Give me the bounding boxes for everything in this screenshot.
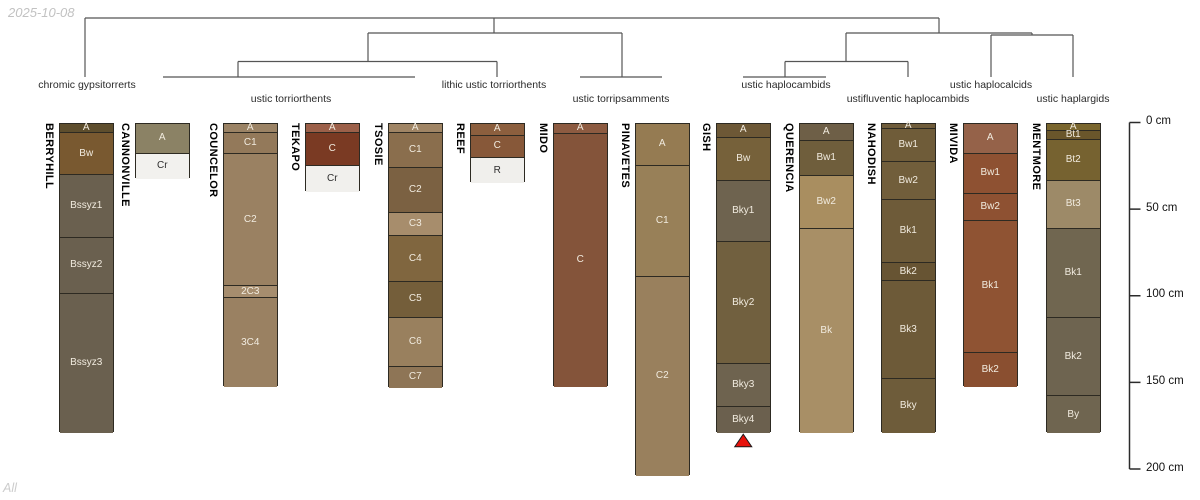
horizon-label: A [577, 123, 584, 133]
depth-tick-label: 50 cm [1146, 202, 1177, 214]
profile-column: ABwBky1Bky2Bky3Bky4 [716, 123, 771, 432]
profile-column: ACr [135, 123, 190, 178]
horizon-block: C [554, 134, 607, 387]
horizon-label: A [247, 123, 254, 133]
horizon-block: R [471, 158, 524, 183]
horizon-label: A [329, 123, 336, 133]
horizon-label: Bssyz3 [70, 358, 102, 368]
profile-column: ACCr [305, 123, 360, 191]
footer-label: All [3, 481, 17, 495]
horizon-label: A [494, 124, 501, 134]
horizon-block: Bw [60, 133, 113, 175]
selected-profile-marker [735, 434, 752, 447]
taxon-label: ustic torriorthents [251, 93, 332, 105]
profile-name-label: CANNONVILLE [117, 123, 133, 253]
profile-column: AC1C2 [635, 123, 690, 476]
horizon-block: 2C3 [224, 286, 277, 298]
horizon-block: C [306, 133, 359, 166]
horizon-block: Bt2 [1047, 140, 1100, 181]
horizon-label: C2 [244, 215, 257, 225]
horizon-block: Bssyz3 [60, 294, 113, 433]
horizon-label: Bk1 [900, 226, 917, 236]
horizon-label: Bw1 [817, 153, 836, 163]
profile-name-label: TEKAPO [287, 123, 303, 253]
horizon-label: Bk1 [982, 281, 999, 291]
horizon-block: A [471, 124, 524, 136]
horizon-label: Bssyz2 [70, 260, 102, 270]
horizon-block: Bk3 [882, 281, 935, 379]
horizon-block: C7 [389, 367, 442, 388]
horizon-label: C [329, 144, 336, 154]
horizon-block: Bk2 [882, 263, 935, 281]
profile-column: ABw1Bw2Bk1Bk2Bk3Bky [881, 123, 936, 432]
horizon-label: A [412, 123, 419, 133]
profile-name-label: TSOSIE [370, 123, 386, 253]
horizon-block: Bw2 [964, 194, 1017, 221]
horizon-label: C6 [409, 337, 422, 347]
profile-name-label: MIDO [535, 123, 551, 253]
horizon-label: Bw [79, 149, 93, 159]
horizon-label: Bky2 [732, 298, 754, 308]
profile-name-label: COUNCELOR [205, 123, 221, 253]
horizon-label: C1 [656, 216, 669, 226]
taxon-label: ustic haplargids [1037, 93, 1110, 105]
horizon-label: A [659, 139, 666, 149]
profile-name-label: GISH [698, 123, 714, 253]
profile-column: ABwBssyz1Bssyz2Bssyz3 [59, 123, 114, 432]
horizon-block: C [471, 136, 524, 159]
taxon-label: ustic torripsamments [573, 93, 670, 105]
horizon-block: A [136, 124, 189, 154]
horizon-block: C3 [389, 213, 442, 236]
depth-tick-label: 200 cm [1146, 462, 1184, 474]
horizon-label: Bky3 [732, 380, 754, 390]
horizon-label: Bw2 [817, 197, 836, 207]
horizon-label: By [1067, 410, 1079, 420]
profile-column: ABw1Bw2Bk1Bk2 [963, 123, 1018, 386]
horizon-block: Bk [800, 229, 853, 433]
horizon-label: Bk2 [900, 267, 917, 277]
taxon-label: ustifluventic haplocambids [847, 93, 970, 105]
horizon-block: Bk2 [1047, 318, 1100, 396]
horizon-block: Bk1 [882, 200, 935, 263]
horizon-label: C4 [409, 254, 422, 264]
horizon-block: Bw1 [800, 141, 853, 177]
profile-name-label: PINAVETES [617, 123, 633, 253]
horizon-block: A [800, 124, 853, 141]
horizon-block: A [60, 124, 113, 134]
horizon-label: Bw [736, 154, 750, 164]
horizon-block: Bt1 [1047, 131, 1100, 140]
horizon-label: C [577, 255, 584, 265]
horizon-label: Bw1 [981, 168, 1000, 178]
horizon-label: Bt2 [1066, 155, 1081, 165]
horizon-label: A [740, 125, 747, 135]
horizon-label: C [494, 141, 501, 151]
horizon-block: Bssyz2 [60, 238, 113, 294]
horizon-block: C1 [636, 166, 689, 277]
taxon-label: lithic ustic torriorthents [442, 79, 546, 91]
horizon-block: Bky [882, 379, 935, 433]
horizon-label: 3C4 [241, 338, 259, 348]
horizon-block: A [964, 124, 1017, 154]
horizon-block: Bt3 [1047, 181, 1100, 230]
horizon-label: A [987, 133, 994, 143]
horizon-label: Bk2 [982, 365, 999, 375]
horizon-label: C7 [409, 372, 422, 382]
profile-column: AC [553, 123, 608, 386]
horizon-block: C5 [389, 282, 442, 318]
horizon-label: Bky [900, 401, 917, 411]
horizon-block: Bw [717, 138, 770, 180]
taxon-label: ustic haplocalcids [950, 79, 1032, 91]
horizon-block: C2 [389, 168, 442, 213]
horizon-block: Bw2 [800, 176, 853, 229]
horizon-label: A [823, 127, 830, 137]
profile-column: AC1C2C3C4C5C6C7 [388, 123, 443, 387]
horizon-label: Bk1 [1065, 268, 1082, 278]
horizon-label: Bw2 [981, 202, 1000, 212]
horizon-label: C2 [656, 371, 669, 381]
horizon-block: Bky4 [717, 407, 770, 433]
horizon-block: Bk2 [964, 353, 1017, 387]
horizon-block: A [717, 124, 770, 139]
profile-name-label: MENTMORE [1028, 123, 1044, 253]
horizon-label: C5 [409, 294, 422, 304]
horizon-block: A [389, 124, 442, 134]
horizon-block: C2 [224, 154, 277, 287]
horizon-block: Bk1 [1047, 229, 1100, 318]
horizon-block: Bw2 [882, 162, 935, 199]
depth-tick-label: 100 cm [1146, 288, 1184, 300]
horizon-label: 2C3 [241, 287, 259, 297]
horizon-label: Bk3 [900, 325, 917, 335]
horizon-label: C2 [409, 185, 422, 195]
profile-column: ABt1Bt2Bt3Bk1Bk2By [1046, 123, 1101, 432]
profile-column: ACR [470, 123, 525, 183]
horizon-label: C3 [409, 219, 422, 229]
horizon-block: Bw1 [964, 154, 1017, 194]
depth-tick-label: 150 cm [1146, 375, 1184, 387]
horizon-block: Bssyz1 [60, 175, 113, 237]
horizon-block: Bk1 [964, 221, 1017, 354]
horizon-label: Cr [157, 161, 168, 171]
horizon-block: C2 [636, 277, 689, 476]
horizon-label: R [494, 166, 501, 176]
horizon-block: A [224, 124, 277, 134]
taxon-label: chromic gypsitorrerts [38, 79, 135, 91]
profile-name-label: QUERENCIA [781, 123, 797, 253]
profile-name-label: BERRYHILL [41, 123, 57, 253]
horizon-block: C6 [389, 318, 442, 367]
horizon-label: Bt1 [1066, 130, 1081, 140]
horizon-label: Bky4 [732, 415, 754, 425]
horizon-block: Cr [306, 166, 359, 192]
horizon-block: Bky1 [717, 181, 770, 243]
horizon-block: C4 [389, 236, 442, 282]
horizon-label: A [159, 133, 166, 143]
depth-tick-label: 0 cm [1146, 115, 1171, 127]
soil-dendrogram-figure: 2025-10-08 chromic gypsitorrertsustic to… [0, 0, 1200, 500]
horizon-block: 3C4 [224, 298, 277, 386]
horizon-label: Bw1 [899, 140, 918, 150]
horizon-block: Cr [136, 154, 189, 179]
horizon-label: A [83, 123, 90, 133]
profile-column: ABw1Bw2Bk [799, 123, 854, 432]
profile-column: AC1C22C33C4 [223, 123, 278, 386]
horizon-label: Bssyz1 [70, 201, 102, 211]
horizon-block: Bky2 [717, 242, 770, 364]
horizon-label: Bky1 [732, 206, 754, 216]
horizon-block: C1 [389, 133, 442, 168]
horizon-label: C1 [409, 145, 422, 155]
horizon-block: A [554, 124, 607, 134]
horizon-block: Bw1 [882, 129, 935, 163]
profile-name-label: REEF [452, 123, 468, 253]
horizon-block: A [306, 124, 359, 134]
profile-name-label: MIVIDA [945, 123, 961, 253]
horizon-label: Bk [820, 326, 832, 336]
horizon-label: Bw2 [899, 176, 918, 186]
profile-name-label: NAHODISH [863, 123, 879, 253]
horizon-label: Cr [327, 174, 338, 184]
horizon-label: C1 [244, 138, 257, 148]
date-label: 2025-10-08 [8, 5, 75, 20]
horizon-label: Bt3 [1066, 199, 1081, 209]
taxon-label: ustic haplocambids [741, 79, 830, 91]
horizon-label: Bk2 [1065, 352, 1082, 362]
horizon-block: By [1047, 396, 1100, 432]
horizon-block: Bky3 [717, 364, 770, 406]
horizon-block: A [636, 124, 689, 166]
horizon-block: C1 [224, 133, 277, 154]
